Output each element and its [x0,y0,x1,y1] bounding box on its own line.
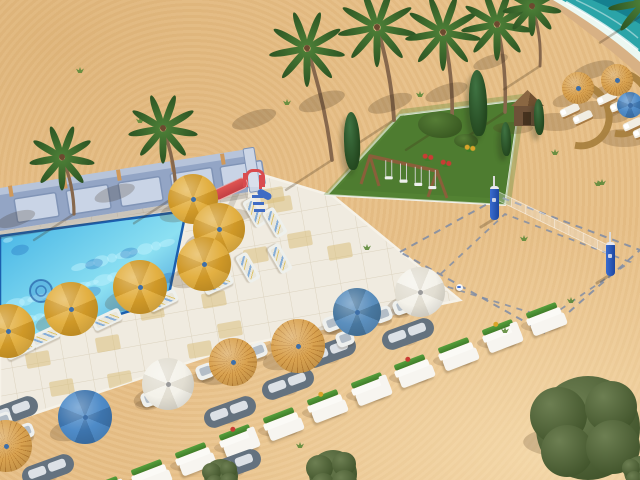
palm-crown-shadow [92,180,136,207]
post-antenna [609,232,611,242]
umbrella-finial [6,329,11,334]
parasol-umbrella-steel [333,288,381,336]
parasol-umbrella-straw [562,72,594,104]
swing-leg [370,156,379,186]
palm-heart [494,21,500,27]
lounger-pillow [623,123,630,130]
flower-patch [421,153,435,161]
lounger-pillow [633,130,640,137]
umbrella-finial [202,262,207,267]
garden-bush [418,112,462,138]
volleyball-net-post [490,186,499,220]
umbrella-finial [217,227,222,232]
parasol-umbrella-blue [58,390,112,444]
umbrella-finial [628,103,633,108]
parasol-umbrella-yellow [113,260,167,314]
palm-heart [529,3,535,9]
palm-trunk-shadow [504,66,540,89]
umbrella-finial [4,444,9,449]
tree-foliage [626,471,640,480]
sofa-cushion [387,329,407,344]
swing-leg [437,171,447,198]
lounger-pillow [560,109,567,116]
swing-leg [361,156,370,184]
palm-heart [160,125,166,131]
palm-trunk-shadow [286,160,332,190]
palm-crown-shadow [0,206,37,232]
slide-ladder-rung [253,202,264,205]
slide-post [259,175,262,189]
umbrella-finial [418,290,423,295]
sofa-cushion [407,322,427,337]
umbrella-finial [191,197,196,202]
flower-patch [463,144,477,152]
leafy-tree [309,450,357,480]
umbrella-finial [355,310,360,315]
sofa-cushion [229,400,249,415]
leafy-tree [204,459,238,480]
lounger-pillow [573,116,580,123]
palm-frond [304,51,311,85]
palm-crown-shadow [423,78,470,106]
umbrella-finial [576,86,581,91]
post-logo [608,254,612,258]
palm-crown-shadow [296,86,347,117]
parasol-umbrella-white [395,267,445,317]
sofa-cushion [27,465,47,480]
umbrella-finial [615,78,620,83]
umbrella-finial [138,285,143,290]
slide-ladder-rung [254,209,265,212]
palm-heart [440,29,446,35]
swing-seat [428,186,436,189]
umbrella-finial [296,344,301,349]
slide-mini-chute [256,188,273,201]
swing-seat [414,183,422,186]
parasol-umbrella-yellow [177,237,231,291]
hut-door [523,112,531,125]
volleyball [456,284,463,291]
parasol-umbrella-straw [601,64,633,96]
umbrella-finial [166,382,171,387]
umbrella-finial [83,415,88,420]
sofa-cushion [11,400,31,415]
volleyball-stripe [457,286,461,288]
sofa-cushion [209,407,229,422]
beach-resort-render: Aerial 3D render of a seaside resort: sw… [0,0,640,480]
slide-post [243,173,246,187]
umbrella-finial [69,307,74,312]
post-logo [492,198,496,202]
palm-crown-shadow [230,105,279,135]
parasol-umbrella-yellow [44,282,98,336]
flower-patch [439,159,453,167]
post-cap [490,186,499,189]
lounger-pillow [610,104,617,111]
palm-trunk-shadow [34,214,74,240]
umbrella-finial [231,360,236,365]
palm-heart [59,154,65,160]
parasol-umbrella-white [142,358,194,410]
sofa-cushion [287,372,307,387]
lounger-pillow [597,97,604,104]
volleyball-net-post [606,242,615,276]
parasol-umbrella-straw [209,338,257,386]
post-cap [606,242,615,245]
leafy-tree [624,456,640,480]
sofa-cushion [267,379,287,394]
palm-frond [440,35,447,69]
post-antenna [493,176,495,186]
sofa-cushion [47,458,67,473]
swing-seat [400,180,408,183]
palm-heart [304,45,310,51]
palm-heart [374,24,380,30]
parasol-umbrella-straw [271,319,325,373]
swing-seat [385,176,393,179]
palm-frond [374,31,381,67]
